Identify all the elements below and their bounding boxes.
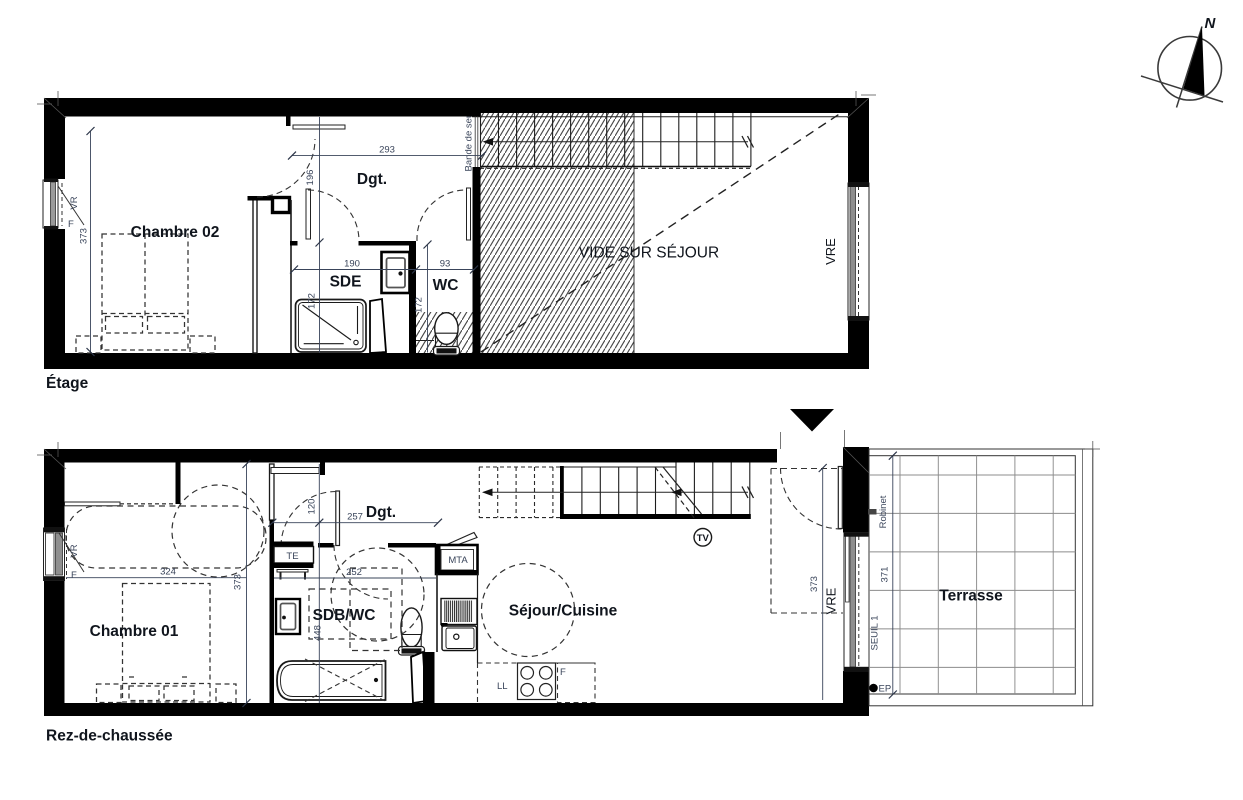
svg-text:WC: WC	[433, 277, 459, 294]
svg-text:120: 120	[307, 499, 318, 515]
svg-text:SEUIL 1: SEUIL 1	[870, 615, 881, 650]
svg-text:172: 172	[414, 297, 425, 313]
svg-text:Dgt.: Dgt.	[357, 171, 387, 188]
svg-text:Bande de seuil: Bande de seuil	[464, 109, 475, 172]
svg-text:Chambre 02: Chambre 02	[131, 224, 220, 241]
svg-text:448: 448	[313, 625, 324, 641]
svg-text:196: 196	[305, 170, 316, 186]
svg-text:252: 252	[346, 567, 362, 578]
svg-text:Séjour/Cuisine: Séjour/Cuisine	[509, 603, 618, 620]
svg-text:TV: TV	[697, 533, 710, 544]
svg-text:EP: EP	[879, 684, 892, 695]
svg-text:VR: VR	[69, 196, 80, 209]
svg-text:293: 293	[379, 145, 395, 156]
svg-text:190: 190	[344, 259, 360, 270]
svg-text:172: 172	[307, 293, 318, 309]
svg-text:SDE: SDE	[330, 274, 362, 291]
svg-text:Rez-de-chaussée: Rez-de-chaussée	[46, 728, 173, 745]
svg-text:MTA: MTA	[448, 555, 468, 566]
svg-text:93: 93	[440, 259, 451, 270]
svg-text:F: F	[560, 667, 566, 678]
svg-text:VRE: VRE	[823, 238, 838, 265]
svg-text:257: 257	[347, 512, 363, 523]
svg-text:VRE: VRE	[824, 587, 839, 614]
svg-text:F: F	[68, 219, 74, 230]
svg-text:373: 373	[79, 228, 90, 244]
svg-text:371: 371	[880, 567, 891, 583]
svg-text:Robinet: Robinet	[878, 495, 889, 528]
svg-text:373: 373	[233, 574, 244, 590]
svg-text:324: 324	[160, 567, 176, 578]
svg-text:TE: TE	[286, 551, 298, 562]
svg-text:Terrasse: Terrasse	[939, 588, 1003, 605]
svg-text:LL: LL	[497, 681, 508, 692]
svg-text:VIDE SUR SÉJOUR: VIDE SUR SÉJOUR	[579, 245, 719, 262]
svg-text:N: N	[1205, 15, 1217, 32]
svg-text:F: F	[71, 570, 77, 581]
svg-text:Dgt.: Dgt.	[366, 504, 396, 521]
svg-text:Étage: Étage	[46, 375, 89, 392]
svg-text:SDB/WC: SDB/WC	[313, 607, 376, 624]
svg-text:VR: VR	[69, 544, 80, 557]
svg-text:Chambre 01: Chambre 01	[90, 623, 179, 640]
svg-text:373: 373	[809, 576, 820, 592]
